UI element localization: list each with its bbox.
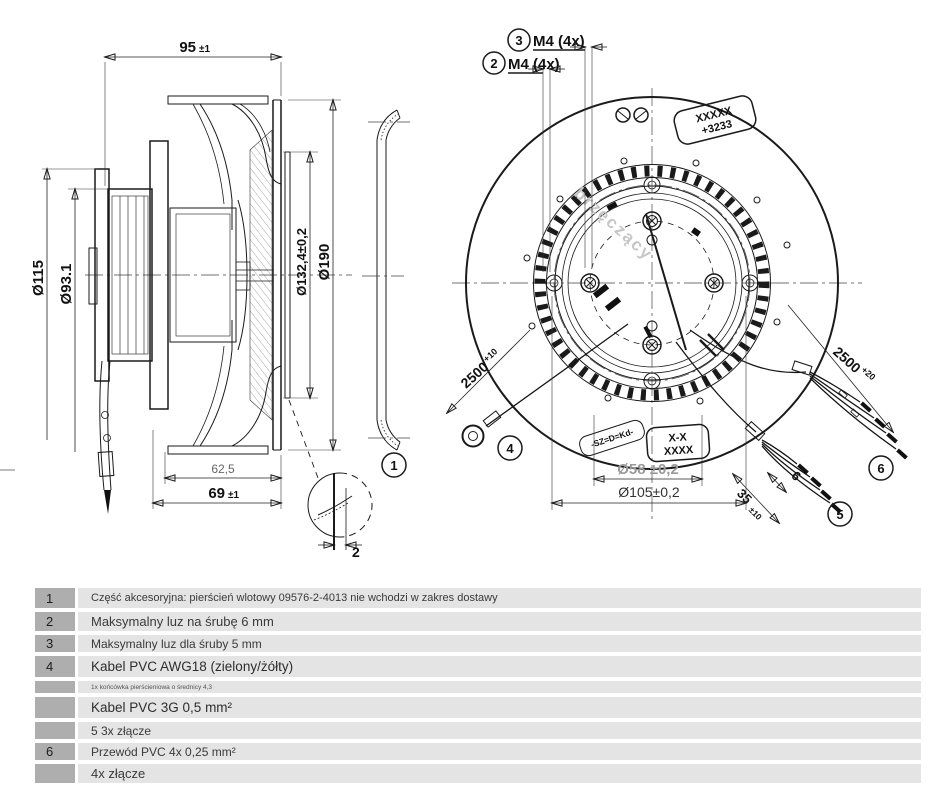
row-number: 3 xyxy=(35,635,75,652)
svg-text:X-X: X-X xyxy=(668,431,688,444)
table-row: 6Przewód PVC 4x 0,25 mm² xyxy=(35,743,921,760)
row-text: Część akcesoryjna: pierścień wlotowy 095… xyxy=(78,588,921,608)
row-number xyxy=(35,681,75,693)
dim-diameter-93: Ø93.1 xyxy=(58,189,112,452)
technical-drawing-page: 95 ±1 Ø115 Ø93.1 Ø132,4±0,2 xyxy=(0,0,929,806)
svg-text:5: 5 xyxy=(836,507,843,522)
table-row: 4x złącze xyxy=(35,764,921,783)
row-number: 4 xyxy=(35,656,75,677)
table-row: Kabel PVC 3G 0,5 mm² xyxy=(35,697,921,718)
drawing-canvas: 95 ±1 Ø115 Ø93.1 Ø132,4±0,2 xyxy=(0,0,929,585)
notes-table: 1Część akcesoryjna: pierścień wlotowy 09… xyxy=(35,588,921,787)
row-number xyxy=(35,722,75,739)
row-number: 1 xyxy=(35,588,75,608)
motor-lead-cable xyxy=(98,361,114,514)
svg-text:3: 3 xyxy=(515,33,522,48)
row-number xyxy=(35,697,75,718)
table-row: 2Maksymalny luz na śrubę 6 mm xyxy=(35,612,921,631)
svg-text:+20: +20 xyxy=(859,365,877,383)
svg-text:±1: ±1 xyxy=(199,44,210,55)
row-text: 1x końcówka pierścieniowa o średnicy 4,3 xyxy=(78,681,921,693)
svg-text:M4 (4x): M4 (4x) xyxy=(508,56,560,73)
table-row: 1x końcówka pierścieniowa o średnicy 4,3 xyxy=(35,681,921,693)
detail-circle: 2 xyxy=(289,400,372,560)
inlet-ring-section xyxy=(362,110,410,450)
row-number: 6 xyxy=(35,743,75,760)
row-number xyxy=(35,764,75,783)
svg-text:4: 4 xyxy=(506,441,514,456)
svg-text:Ø132,4±0,2: Ø132,4±0,2 xyxy=(294,228,309,296)
row-text: Kabel PVC 3G 0,5 mm² xyxy=(78,697,921,718)
callout-6: 6 xyxy=(869,456,893,480)
row-text: 4x złącze xyxy=(78,764,921,783)
section-label: X-X XXXX xyxy=(646,424,710,462)
svg-text:XXXX: XXXX xyxy=(663,444,694,458)
table-row: 5 3x złącze xyxy=(35,722,921,739)
svg-text:6: 6 xyxy=(788,468,804,484)
row-text: 5 3x złącze xyxy=(78,722,921,739)
svg-text:2: 2 xyxy=(490,56,497,71)
front-view: brzęczący XXXXX +3233 -SZ=D=Kd- X-X XXXX… xyxy=(447,29,908,526)
row-text: Maksymalny luz dla śruby 5 mm xyxy=(78,635,921,652)
svg-text:±1: ±1 xyxy=(228,490,239,501)
svg-text:2: 2 xyxy=(352,544,360,560)
row-text: Przewód PVC 4x 0,25 mm² xyxy=(78,743,921,760)
row-text: Kabel PVC AWG18 (zielony/żółty) xyxy=(78,656,921,677)
row-text: Maksymalny luz na śrubę 6 mm xyxy=(78,612,921,631)
svg-text:95: 95 xyxy=(179,39,196,56)
svg-text:Ø93.1: Ø93.1 xyxy=(58,264,75,305)
svg-text:Ø105±0,2: Ø105±0,2 xyxy=(618,484,680,500)
svg-text:Ø190: Ø190 xyxy=(316,244,333,281)
callout-5: 5 xyxy=(828,502,852,526)
row-number: 2 xyxy=(35,612,75,631)
callout-2-m4: 2 M4 (4x) xyxy=(483,52,565,272)
svg-text:69: 69 xyxy=(208,485,225,502)
svg-text:Ø58 ±0,2: Ø58 ±0,2 xyxy=(617,461,679,478)
table-row: 3Maksymalny luz dla śruby 5 mm xyxy=(35,635,921,652)
svg-text:62,5: 62,5 xyxy=(211,462,235,476)
svg-text:35: 35 xyxy=(734,486,755,507)
marking-stamp: -SZ=D=Kd- xyxy=(578,418,647,457)
callout-1-inlet-ring: 1 xyxy=(382,453,406,477)
svg-text:-SZ=D=Kd-: -SZ=D=Kd- xyxy=(590,426,635,449)
svg-text:Ø115: Ø115 xyxy=(30,260,47,296)
callout-4: 4 xyxy=(498,436,522,460)
nameplate: XXXXX +3233 xyxy=(672,94,758,146)
svg-text:±10: ±10 xyxy=(747,505,764,522)
svg-text:1: 1 xyxy=(390,458,397,473)
side-view: 95 ±1 Ø115 Ø93.1 Ø132,4±0,2 xyxy=(0,39,410,560)
table-row: 1Część akcesoryjna: pierścień wlotowy 09… xyxy=(35,588,921,608)
table-row: 4Kabel PVC AWG18 (zielony/żółty) xyxy=(35,656,921,677)
svg-text:M4 (4x): M4 (4x) xyxy=(533,33,585,50)
ground-cable: 2500 +10 xyxy=(447,324,628,447)
svg-text:6: 6 xyxy=(877,461,884,476)
